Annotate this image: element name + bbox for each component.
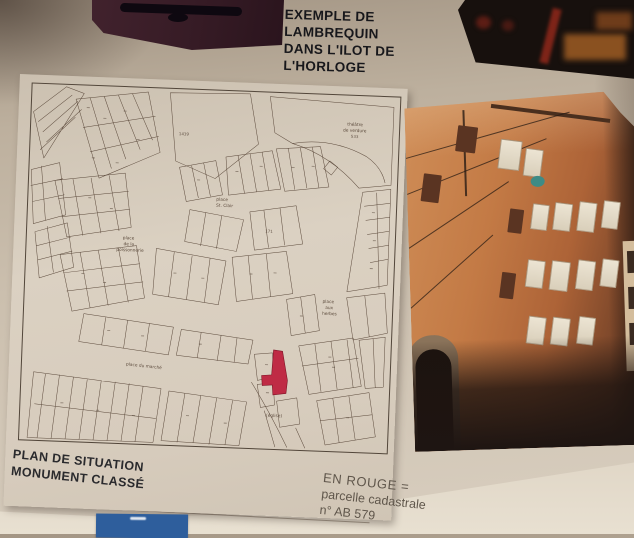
- shutter: [530, 203, 550, 231]
- shutter: [601, 200, 621, 230]
- map-parcel-number: 171: [265, 229, 273, 234]
- panel-title: EXEMPLE DE LAMBREQUIN DANS L'ILOT DE L'H…: [283, 6, 435, 78]
- map-label-eglise: (église): [266, 412, 283, 420]
- lambrequin-photo: [92, 0, 284, 50]
- shutter: [523, 148, 544, 178]
- map-sheet: 1439 théâtre de verdure 533 place St. Cl…: [3, 74, 407, 521]
- shutter: [576, 201, 598, 233]
- dark-corner-photo: [458, 0, 634, 82]
- map-label-theatre: 533: [351, 134, 359, 139]
- shutter: [525, 259, 546, 289]
- map-label-theatre: théâtre: [347, 121, 363, 129]
- photo-red-detail: [502, 20, 514, 31]
- map-label-st-clair: St. Clair: [216, 203, 233, 210]
- photo-orange-patch: [564, 34, 626, 60]
- blue-card-text-hint: [130, 517, 146, 520]
- photo-red-streak: [539, 8, 561, 65]
- shutter: [548, 260, 571, 292]
- shutter: [552, 202, 573, 232]
- shutter: [497, 139, 523, 172]
- map-label-poissonnerie: de la: [123, 241, 134, 247]
- photo-red-detail: [476, 16, 491, 29]
- map-label-poissonnerie: poissonnerie: [116, 247, 144, 254]
- blue-card: [96, 514, 188, 538]
- shutter: [599, 258, 619, 288]
- photo-orange-patch: [596, 12, 632, 30]
- window: [421, 173, 442, 203]
- cadastral-map-drawing: 1439 théâtre de verdure 533 place St. Cl…: [19, 83, 400, 453]
- map-label-poissonnerie: place: [123, 235, 135, 241]
- plan-caption: PLAN DE SITUATION MONUMENT CLASSÉ: [10, 446, 147, 493]
- map-label-marche: place du marché: [126, 360, 163, 371]
- street-shadow: [412, 335, 634, 452]
- map-label-st-clair: place: [216, 197, 228, 203]
- map-parcel-number: 1439: [179, 131, 190, 136]
- cadastral-map: 1439 théâtre de verdure 533 place St. Cl…: [18, 82, 401, 454]
- lambrequin-detail: [168, 13, 188, 22]
- window: [499, 272, 516, 300]
- red-parcel-ab579: [261, 350, 289, 396]
- map-label-herbes: aux: [325, 306, 334, 311]
- shutter: [575, 259, 597, 291]
- building-photo: [404, 91, 634, 452]
- map-label-herbes: place: [322, 299, 334, 305]
- title-line: L'HORLOGE: [283, 57, 433, 78]
- window: [455, 125, 478, 153]
- map-label-herbes: herbes: [322, 311, 338, 318]
- photographed-display-board: { "board": { "title_lines": ["EXEMPLE DE…: [0, 0, 634, 534]
- window: [507, 208, 524, 234]
